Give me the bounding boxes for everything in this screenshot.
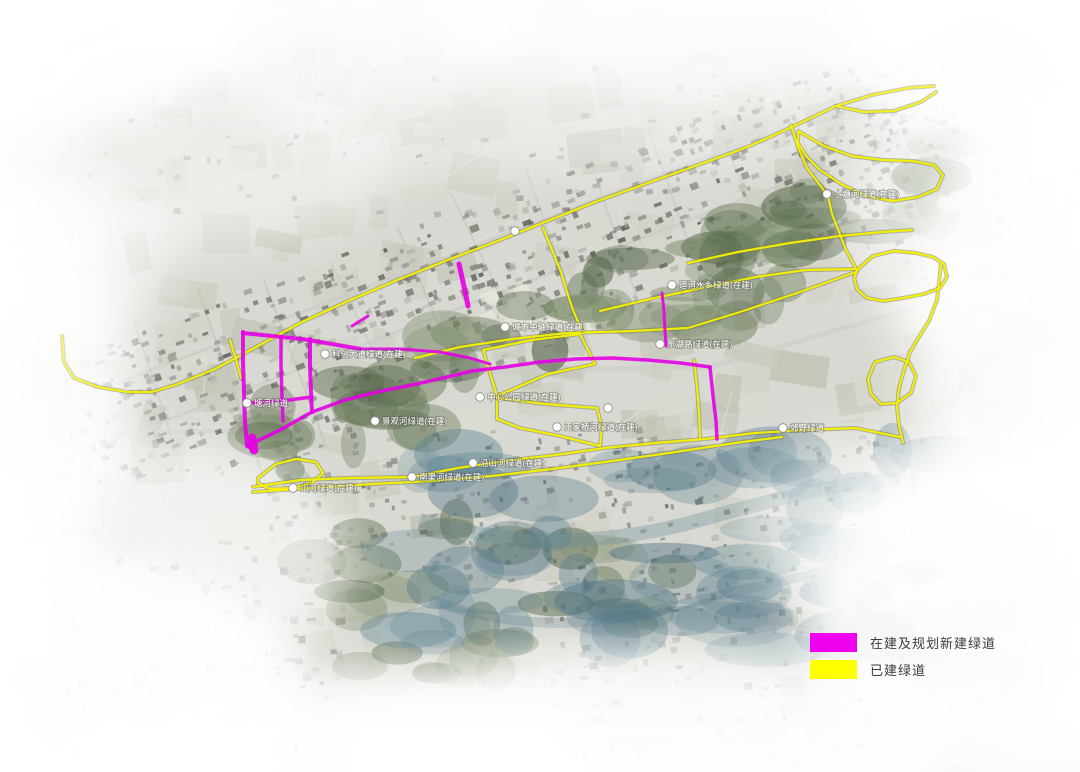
greenway-marker: 王家桥河绿道(在建) (553, 422, 638, 432)
greenway-marker-label: 山河绿道(在建) (300, 483, 357, 493)
built-greenway-swatch (810, 660, 857, 679)
greenway-marker-label: 中心公园绿道(在建) (487, 392, 561, 402)
legend-row-built: 已建绿道 (810, 660, 996, 679)
greenway-marker-label: 运河水乡绿道(在建) (679, 280, 753, 290)
greenway-marker: 南渠河绿道(在建) (408, 472, 485, 482)
greenway-marker: 塘河绿道 (243, 398, 289, 408)
greenway-marker-label: 南渠河绿道(在建) (419, 472, 484, 482)
greenway-marker-label: 王家桥河绿道(在建) (564, 422, 638, 432)
greenway-marker: 上塘河绿道(在建) (823, 189, 900, 199)
greenway-marker: 中心公园绿道(在建) (476, 392, 561, 402)
greenway-marker: 运河水乡绿道(在建) (668, 280, 753, 290)
greenway-marker-label: 景观河绿道(在建) (382, 416, 447, 426)
greenway-marker-label: 科创大道绿道(在建) (332, 349, 406, 359)
legend-row-planned: 在建及规划新建绿道 (810, 633, 996, 652)
greenway-marker: 郊野绿道 (779, 423, 825, 433)
planned-greenway-route (310, 339, 312, 412)
greenway-marker-label: 郊野绿道 (790, 423, 825, 433)
planned-greenway-route (281, 337, 283, 421)
greenway-marker: 沿山河绿道(在建) (469, 458, 546, 468)
legend: 在建及规划新建绿道 已建绿道 (810, 633, 996, 687)
greenway-marker: 城市中轴绿道(在建) (501, 322, 586, 332)
greenway-marker-label: 塘河绿道 (254, 398, 289, 408)
planned-greenway-swatch (810, 633, 857, 652)
greenway-marker: 东湖路绿道(在建) (656, 339, 733, 349)
built-greenway-label: 已建绿道 (870, 660, 926, 679)
greenway-marker (511, 227, 520, 236)
greenway-marker: 景观河绿道(在建) (371, 416, 448, 426)
greenway-marker (604, 404, 613, 413)
greenway-marker-label: 东湖路绿道(在建) (667, 339, 732, 349)
greenway-marker-label: 沿山河绿道(在建) (480, 458, 545, 468)
greenway-planning-map: 塘河绿道科创大道绿道(在建)景观河绿道(在建)中心公园绿道(在建)城市中轴绿道(… (0, 0, 1080, 772)
greenway-marker: 科创大道绿道(在建) (321, 349, 406, 359)
planned-greenway-label: 在建及规划新建绿道 (870, 633, 996, 652)
greenway-marker-label: 上塘河绿道(在建) (834, 189, 899, 199)
greenway-marker-label: 城市中轴绿道(在建) (512, 322, 586, 332)
planned-greenway-route (252, 438, 254, 450)
